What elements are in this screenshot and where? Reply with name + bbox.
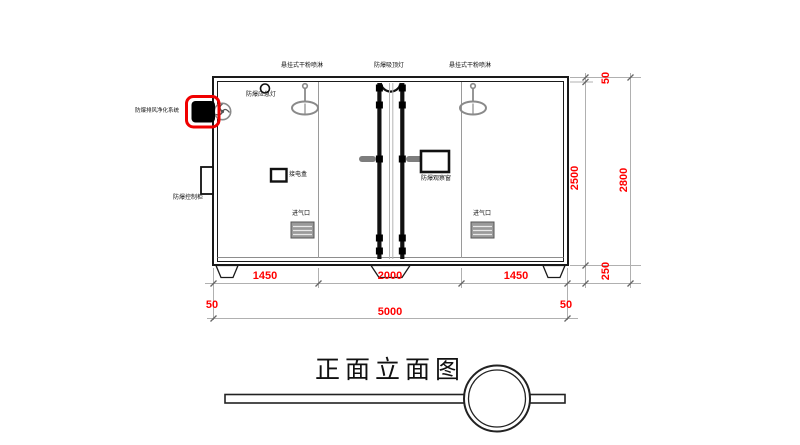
dim-offset-top-right: 50 [600, 58, 614, 98]
dim-bay-right: 1450 [491, 270, 541, 282]
dim-bay-center: 2000 [365, 270, 415, 282]
air-inlet-right-label: 进气口 [469, 211, 495, 218]
observation-window-label: 防爆观察窗 [417, 176, 455, 183]
air-inlet-right-symbol [471, 222, 494, 238]
junction-box-symbol [271, 169, 287, 182]
observation-window-symbol [421, 151, 449, 172]
elevation-drawing: 悬挂式干粉喷淋 防爆吸顶灯 悬挂式干粉喷淋 防爆应急灯 防爆排风净化系统 防爆控… [0, 0, 800, 445]
door-handle-left [359, 156, 376, 162]
dim-body-height: 2500 [569, 158, 583, 198]
sprinkler-right-label: 悬挂式干粉喷淋 [440, 63, 500, 70]
control-cabinet-label: 防爆控制柜 [168, 195, 208, 202]
dim-overall-height: 2800 [618, 160, 632, 200]
junction-box-label: 接电盒 [289, 172, 313, 179]
emergency-light-label: 防爆应急灯 [240, 92, 282, 99]
exhaust-purifier-label: 防爆排风净化系统 [131, 108, 183, 115]
dim-base-height: 250 [600, 251, 614, 291]
sprinkler-left-label: 悬挂式干粉喷淋 [272, 63, 332, 70]
air-inlet-left-symbol [291, 222, 314, 238]
dim-offset-bottom-right: 50 [554, 299, 578, 311]
container-body [213, 77, 568, 265]
fan-icon [214, 103, 230, 119]
dim-bay-left: 1450 [240, 270, 290, 282]
ceiling-light-label: 防爆吸顶灯 [364, 63, 414, 70]
air-inlet-left-label: 进气口 [288, 211, 314, 218]
control-cabinet-symbol [201, 167, 213, 194]
dim-offset-bottom-left: 50 [200, 299, 224, 311]
dim-overall-width: 5000 [365, 306, 415, 318]
drawing-title: 正面立面图 [290, 350, 490, 386]
